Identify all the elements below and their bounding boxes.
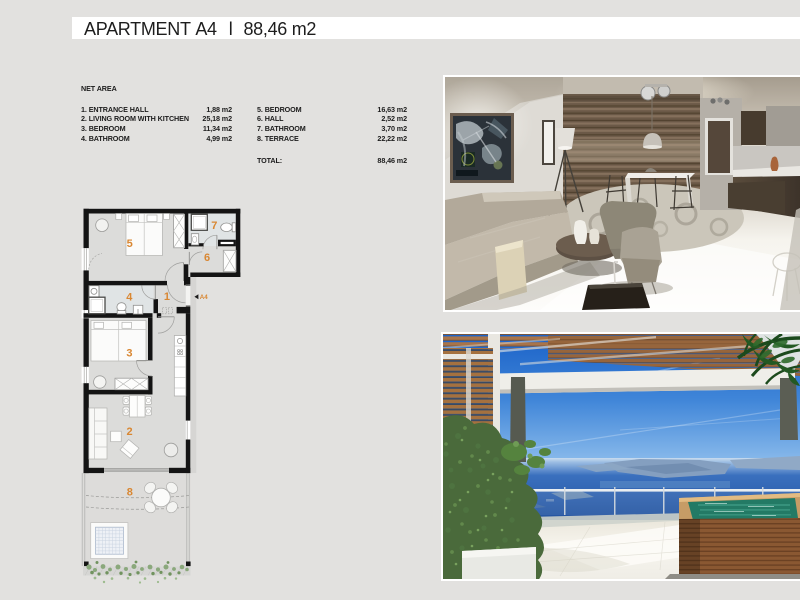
svg-text:3: 3 bbox=[126, 348, 132, 360]
svg-text:6: 6 bbox=[204, 252, 210, 264]
svg-text:7: 7 bbox=[211, 220, 217, 232]
svg-text:1: 1 bbox=[164, 291, 170, 303]
svg-text:5: 5 bbox=[127, 238, 133, 250]
svg-text:2: 2 bbox=[127, 426, 133, 438]
svg-text:4: 4 bbox=[126, 292, 133, 304]
svg-text:A4: A4 bbox=[200, 294, 208, 301]
svg-text:8: 8 bbox=[127, 487, 133, 499]
